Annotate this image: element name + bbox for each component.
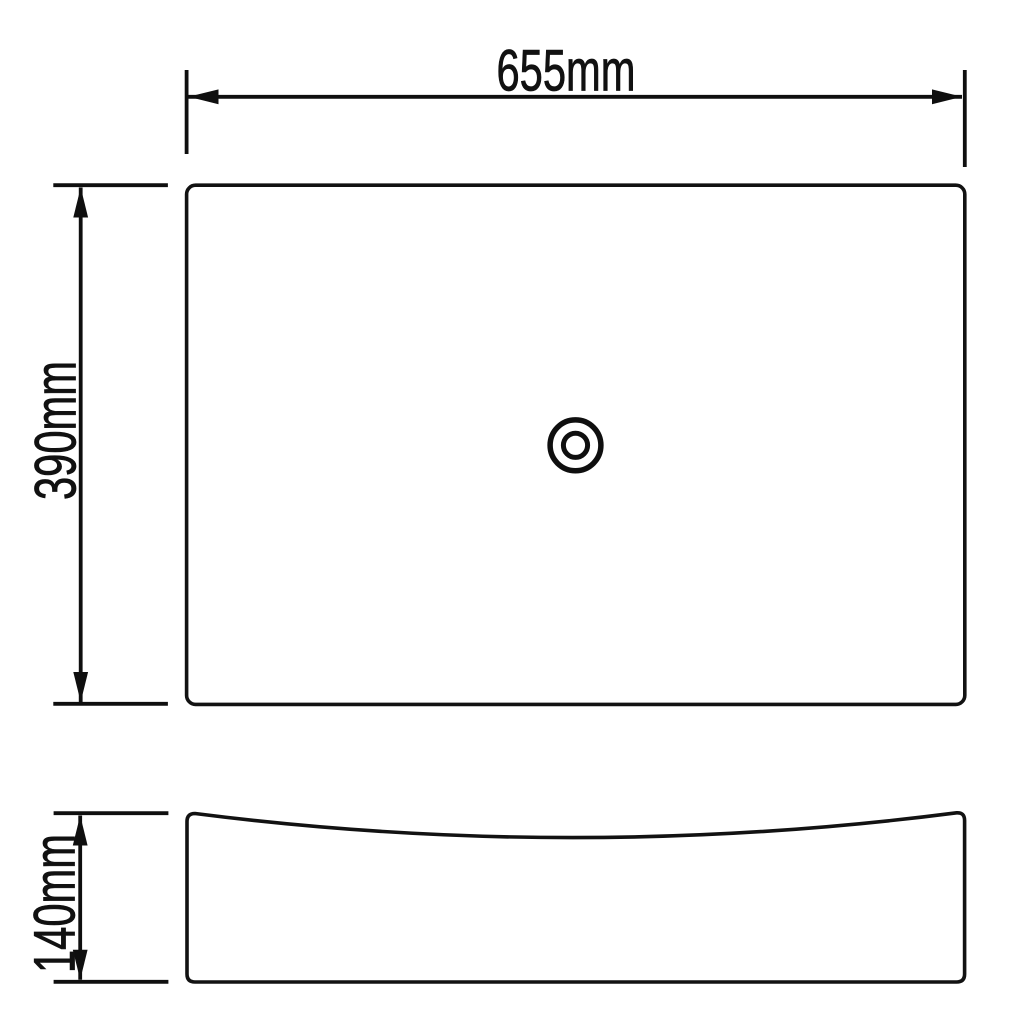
svg-text:655mm: 655mm <box>497 39 636 104</box>
svg-text:390mm: 390mm <box>24 361 89 500</box>
svg-text:140mm: 140mm <box>23 834 88 973</box>
